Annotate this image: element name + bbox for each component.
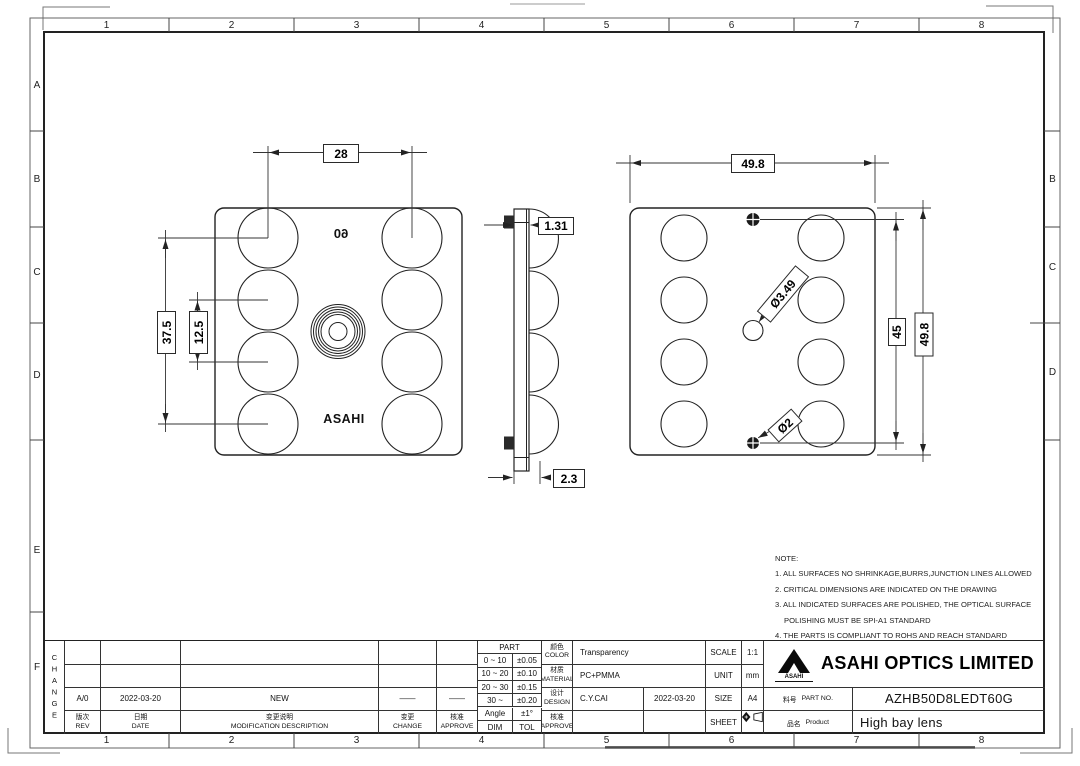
product-label-cell: 品名 Product [764,711,853,734]
side-view-geometry [484,209,559,484]
front-beam-angle-marking: 60 [326,226,356,240]
grid-col-1-top: 1 [44,18,169,32]
grid-col-5-top: 5 [544,18,669,32]
notes-title: NOTE: [775,551,1043,566]
change-header-cn: 变更 [401,714,415,723]
side-pin-bottom [504,437,515,450]
grid-col-7-bottom: 7 [794,734,919,748]
description-header: 变更说明 MODIFICATION DESCRIPTION [181,711,379,734]
color-label: 颜色 COLOR [542,641,573,665]
approve-header-en: APPROVE [441,723,474,732]
date-header-en: DATE [132,723,150,732]
part-no-value: AZHB50D8LEDT60G [853,688,1045,712]
approve-header-cn: 核准 [450,714,464,723]
design-by-value: C.Y.CAI [573,688,644,712]
back-center-hole [743,321,763,341]
dim-label-2-3: 2.3 [553,469,585,488]
rev-header: 版次 REV [65,711,101,734]
material-value: PC+PMMA [573,665,706,688]
approve-label-en: APPROVE [542,723,573,732]
change-header-en: CHANGE [393,723,422,732]
product-label-cn: 品名 [787,718,801,728]
part-no-label-cn: 料号 [783,694,797,704]
date-header: 日期 DATE [101,711,181,734]
design-date-value: 2022-03-20 [644,688,706,712]
back-pin-bottom [747,437,759,449]
change-mark-cell: —— [379,688,437,712]
tol-range: 30 ~ [478,694,513,707]
approve-cell-empty [437,641,478,665]
description-header-en: MODIFICATION DESCRIPTION [231,723,328,732]
grid-col-8-top: 8 [919,18,1044,32]
grid-col-4-bottom: 4 [419,734,544,748]
note-line: POLISHING MUST BE SPI-A1 STANDARD [775,613,1043,628]
dim-label-49-8-right: 49.8 [915,312,934,356]
side-pin-top [504,216,515,229]
date-cell-empty [101,641,181,665]
color-value: Transparency [573,641,706,665]
tol-value: TOL [513,721,542,734]
design-label: 设计 DESIGN [542,688,573,712]
sheet-label: SHEET [706,711,742,734]
sheet-value-cell [742,711,764,734]
company-logo-caption: ASAHI [775,674,813,682]
change-cell-empty [379,641,437,665]
note-line: 2. CRITICAL DIMENSIONS ARE INDICATED ON … [775,582,1043,597]
date-header-cn: 日期 [134,714,148,723]
color-label-en: COLOR [545,652,569,661]
change-header: 变更 CHANGE [379,711,437,734]
title-block: CHANGE A/0 版次 REV 2022-03-20 日期 DATE NEW… [44,640,1044,733]
tol-value: ±0.10 [513,668,542,681]
material-label-cn: 材质 [550,667,564,676]
description-cell-empty [181,641,379,665]
tolerance-table-title: PART [478,641,542,654]
grid-row-d-right: D [1045,364,1060,380]
rev-cell-empty [65,641,101,665]
approve-mark-cell: —— [437,688,478,712]
rev-cell: A/0 [65,688,101,712]
grid-col-6-top: 6 [669,18,794,32]
rev-header-en: REV [76,723,90,732]
scale-label: SCALE [706,641,742,665]
front-brand-marking: ASAHI [314,412,374,426]
change-vertical-cell: CHANGE [45,641,65,734]
grid-col-6-bottom: 6 [669,734,794,748]
tol-range: 10 ~ 20 [478,668,513,681]
grid-row-c-left: C [30,264,44,280]
change-cell-empty [379,665,437,688]
third-angle-projection-icon [742,711,764,723]
grid-col-4-top: 4 [419,18,544,32]
change-vertical-label: CHANGE [50,653,59,722]
design-label-en: DESIGN [544,699,570,708]
date-cell: 2022-03-20 [101,688,181,712]
product-value: High bay lens [853,711,1045,734]
approve-cell-empty [437,665,478,688]
tol-range: 20 ~ 30 [478,681,513,694]
color-label-cn: 颜色 [550,644,564,653]
notes-block: NOTE: 1. ALL SURFACES NO SHRINKAGE,BURRS… [775,551,1043,643]
grid-row-b-left: B [30,171,44,187]
description-header-cn: 变更说明 [266,714,293,723]
size-value: A4 [742,688,764,712]
side-dome-profiles [529,209,559,454]
note-line: 1. ALL SURFACES NO SHRINKAGE,BURRS,JUNCT… [775,566,1043,581]
tol-range: Angle [478,708,513,721]
grid-row-e-left: E [30,542,44,558]
date-cell-empty [101,665,181,688]
grid-col-1-bottom: 1 [44,734,169,748]
unit-value: mm [742,665,764,688]
tol-value: ±0.20 [513,694,542,707]
drawing-canvas: 1 2 3 4 5 6 7 8 1 2 3 4 5 6 7 8 A B C D … [0,0,1080,766]
approve-label-cn: 核准 [550,714,564,723]
grid-row-b-right: B [1045,171,1060,187]
tol-value: ±0.05 [513,654,542,667]
description-cell: NEW [181,688,379,712]
approve-by-value-empty [573,711,644,734]
part-no-label-cell: 料号 PART NO. [764,688,853,712]
rev-cell-empty [65,665,101,688]
tol-range: DIM [478,721,513,734]
dim-label-45: 45 [888,318,906,346]
grid-col-2-bottom: 2 [169,734,294,748]
approve-date-value-empty [644,711,706,734]
dim-label-49-8-top: 49.8 [731,154,775,173]
company-logo-icon: ASAHI [775,647,813,681]
tol-value: ±1° [513,708,542,721]
grid-row-c-right: C [1045,259,1060,275]
grid-row-f-left: F [30,659,44,675]
unit-label: UNIT [706,665,742,688]
dim-label-37-5: 37.5 [157,311,176,354]
material-label-en: MATERIAL [542,676,573,685]
grid-col-3-top: 3 [294,18,419,32]
grid-col-7-top: 7 [794,18,919,32]
rev-header-cn: 版次 [76,714,90,723]
part-no-label-en: PART NO. [802,695,833,702]
dim-label-12-5: 12.5 [189,311,208,354]
company-banner: ASAHI ASAHI OPTICS LIMITED [764,641,1045,688]
approve-header: 核准 APPROVE [437,711,478,734]
product-label-en: Product [806,719,829,726]
grid-row-a-left: A [30,77,44,93]
front-view-geometry [158,146,462,455]
description-cell-empty [181,665,379,688]
material-label: 材质 MATERIAL [542,665,573,688]
note-line: 3. ALL INDICATED SURFACES ARE POLISHED, … [775,597,1043,612]
company-name: ASAHI OPTICS LIMITED [821,653,1034,674]
grid-col-3-bottom: 3 [294,734,419,748]
grid-col-5-bottom: 5 [544,734,669,748]
grid-col-2-top: 2 [169,18,294,32]
grid-col-8-bottom: 8 [919,734,1044,748]
tol-value: ±0.15 [513,681,542,694]
grid-row-d-left: D [30,367,44,383]
dim-label-28: 28 [323,144,359,163]
size-label: SIZE [706,688,742,712]
approve-label: 核准 APPROVE [542,711,573,734]
scale-value: 1:1 [742,641,764,665]
design-label-cn: 设计 [550,690,564,699]
dim-label-1-31: 1.31 [538,217,574,235]
tol-range: 0 ~ 10 [478,654,513,667]
